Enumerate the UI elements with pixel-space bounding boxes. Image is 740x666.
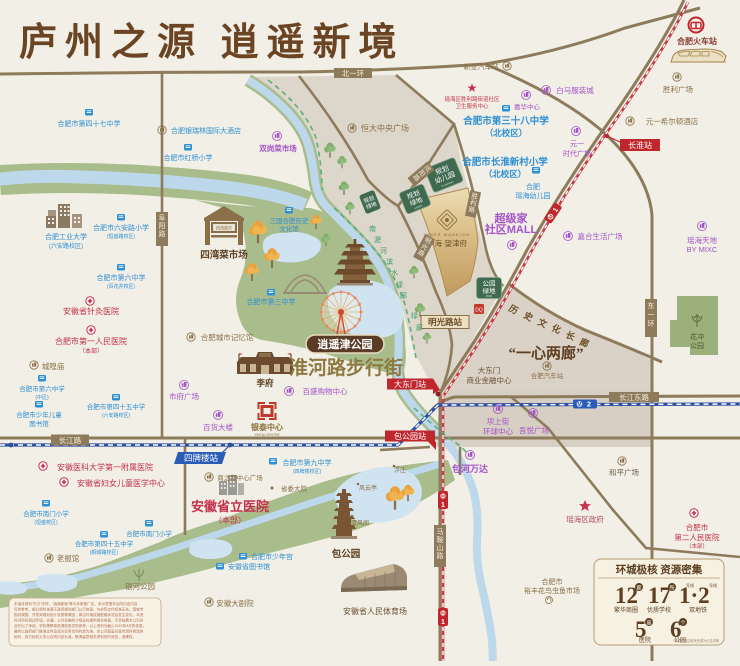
svg-text:时代广场: 时代广场 [563,149,591,158]
svg-text:裕丰花鸟虫鱼市场: 裕丰花鸟虫鱼市场 [524,586,580,595]
svg-text:大东门站: 大东门站 [394,379,426,389]
svg-text:廊: 廊 [400,291,407,300]
svg-text:合肥: 合肥 [526,182,540,191]
svg-text:文化馆: 文化馆 [279,224,299,233]
svg-text:（本部）: （本部） [214,515,246,525]
svg-text:四湾菜市: 四湾菜市 [216,225,232,231]
svg-text:最终以政府部门核准文件及双方买卖合同约定为准。本公司保留对宣: 最终以政府部门核准文件及双方买卖合同约定为准。本公司保留对宣传资料修改的 [14,629,144,634]
svg-text:合肥城市记忆馆: 合肥城市记忆馆 [201,332,254,342]
svg-text:第二人民医院: 第二人民医院 [675,532,720,542]
svg-text:1·2: 1·2 [679,583,710,608]
svg-text:李府: 李府 [255,378,274,388]
svg-text:合肥市六安路小学: 合肥市六安路小学 [93,223,149,232]
svg-text:包公园站: 包公园站 [394,431,426,441]
svg-text:淮河路步行街: 淮河路步行街 [289,356,403,379]
svg-text:环: 环 [648,320,655,328]
svg-text:商业金融中心: 商业金融中心 [467,375,512,385]
svg-text:三国合肥历史: 三国合肥历史 [270,216,310,225]
svg-text:滨: 滨 [386,257,393,266]
svg-text:嘉合生活广场: 嘉合生活广场 [578,231,623,241]
svg-text:M: M [441,494,445,499]
svg-text:明光路站: 明光路站 [428,317,463,327]
svg-text:鞍: 鞍 [437,535,444,544]
svg-text:规划调整、开发商规划设计变更等原因，周边环境设施配套状况会发: 规划调整、开发商规划设计变更等原因，周边环境设施配套状况会发生变化，本资 [14,612,144,617]
svg-text:合肥市第三十八中学: 合肥市第三十八中学 [463,115,549,127]
svg-text:（本部）: （本部） [79,347,103,355]
svg-text:个: 个 [680,621,685,627]
svg-text:(四牌楼校区): (四牌楼校区) [293,468,322,475]
svg-text:合肥市第六中学: 合肥市第六中学 [19,384,65,393]
svg-text:17: 17 [648,583,671,608]
svg-text:新亚汽车站: 新亚汽车站 [464,62,499,71]
svg-text:12: 12 [615,583,638,608]
svg-text:合肥市第四十七中学: 合肥市第四十七中学 [58,119,121,128]
svg-text:双地铁: 双地铁 [689,606,707,614]
svg-text:绿: 绿 [411,311,418,320]
svg-text:水: 水 [391,268,398,277]
svg-text:（本部）: （本部） [686,542,708,550]
svg-text:省委大院: 省委大院 [281,484,308,493]
svg-text:市府广场: 市府广场 [169,391,199,401]
svg-text:图书馆: 图书馆 [29,419,49,428]
svg-text:(恒盛路校区): (恒盛路校区) [107,233,136,240]
svg-text:合肥市第四十五中学: 合肥市第四十五中学 [87,402,146,411]
svg-text:公园: 公园 [483,280,496,288]
svg-text:YINTAI CENTRE: YINTAI CENTRE [254,433,280,437]
svg-text:双岗菜市场: 双岗菜市场 [259,143,297,153]
svg-text:银泰中心: 银泰中心 [250,422,283,432]
svg-text:阳: 阳 [159,221,166,230]
svg-text:恒大中央广场: 恒大中央广场 [361,123,409,133]
svg-text:路: 路 [437,551,444,560]
svg-text:合肥火车站: 合肥火车站 [676,36,717,46]
svg-text:（北校区）: （北校区） [485,128,528,138]
svg-text:合肥汽车站: 合肥汽车站 [531,371,564,380]
svg-text:绿: 绿 [396,280,403,289]
svg-text:绿地: 绿地 [483,286,497,295]
svg-text:安徽省立医院: 安徽省立医院 [191,499,269,514]
svg-text:马: 马 [437,528,444,536]
svg-text:合肥市第一人民医院: 合肥市第一人民医院 [55,336,127,346]
svg-text:南: 南 [369,224,376,233]
svg-text:庐州之源 逍遥新境: 庐州之源 逍遥新境 [19,22,405,64]
svg-text:合肥市少年儿童: 合肥市少年儿童 [16,410,62,419]
svg-text:长江东路: 长江东路 [619,392,649,402]
svg-text:合肥市第四十五中学: 合肥市第四十五中学 [75,539,134,548]
svg-text:坝上街: 坝上街 [487,416,510,426]
svg-text:合肥市少年宫: 合肥市少年宫 [251,552,293,561]
svg-text:阜: 阜 [159,213,166,222]
svg-text:吾悦广场: 吾悦广场 [519,425,549,435]
svg-text:北一环: 北一环 [342,69,365,78]
svg-text:料对项目周边环境、交通、公共设施的介绍旨在提供相关信息，不意: 料对项目周边环境、交通、公共设施的介绍旨在提供相关信息，不意味着本公司对 [14,618,144,623]
svg-text:M: M [441,611,445,616]
svg-text:2: 2 [587,400,591,409]
svg-text:路: 路 [159,229,166,238]
svg-text:安徽省图书馆: 安徽省图书馆 [228,562,270,571]
svg-text:（北校区）: （北校区） [484,169,527,179]
svg-text:此作出了承诺。学校等教育资源信息仅供参考，以上资料为截止20: 此作出了承诺。学校等教育资源信息仅供参考，以上资料为截止2022年8月的信息， [14,623,146,628]
svg-text:安徽大剧院: 安徽大剧院 [216,598,254,608]
svg-text:瑶海幼儿园: 瑶海幼儿园 [516,191,551,200]
svg-text:东: 东 [648,301,655,310]
svg-text:座: 座 [646,620,651,627]
svg-text:百盛购物中心: 百盛购物中心 [303,386,348,396]
svg-text:(百花井校区): (百花井校区) [107,283,136,290]
svg-text:环城极核 资源密集: 环城极核 资源密集 [616,563,703,576]
svg-text:河: 河 [380,247,387,255]
svg-text:安徽医科大学第一附属医院: 安徽医科大学第一附属医院 [57,462,153,472]
svg-text:花冲: 花冲 [690,332,704,341]
svg-text:合肥市第三中学: 合肥市第三中学 [247,297,296,306]
svg-text:四湾菜市场: 四湾菜市场 [200,249,248,261]
svg-text:长淮站: 长淮站 [628,140,652,150]
svg-text:(恒盛校区): (恒盛校区) [34,519,58,526]
svg-text:合肥市第六中学: 合肥市第六中学 [97,273,146,282]
svg-text:1: 1 [441,502,445,509]
svg-text:M: M [577,402,581,408]
svg-text:号线: 号线 [686,582,694,588]
svg-text:繁华商圈: 繁华商圈 [614,606,638,614]
svg-text:包河万达: 包河万达 [451,463,488,474]
svg-text:大东门: 大东门 [478,365,501,375]
svg-text:老报馆: 老报馆 [57,553,80,563]
svg-text:元一希尔顿酒店: 元一希尔顿酒店 [646,116,699,126]
svg-text:*以项目周边现状资源为示意说明: *以项目周边现状资源为示意说明 [673,638,719,643]
svg-text:(桐城路校区): (桐城路校区) [90,549,119,556]
svg-text:安徽省妇女儿童医学中心: 安徽省妇女儿童医学中心 [77,478,165,488]
svg-text:长江路: 长江路 [59,435,82,445]
svg-text:胜利广场: 胜利广场 [663,84,693,94]
svg-text:合肥市南门小学: 合肥市南门小学 [23,509,69,518]
svg-text:1: 1 [441,619,445,626]
svg-text:淝: 淝 [374,235,381,244]
svg-text:(中区): (中区) [35,394,49,401]
svg-text:优质学校: 优质学校 [647,606,671,614]
svg-text:元一: 元一 [570,140,584,148]
svg-text:山: 山 [437,543,444,552]
svg-text:四牌楼站: 四牌楼站 [184,453,219,463]
svg-text:医院: 医院 [639,636,651,644]
svg-text:白马服装城: 白马服装城 [556,85,594,95]
svg-text:合肥市长淮新村小学: 合肥市长淮新村小学 [462,156,548,168]
svg-text:安徽省针灸医院: 安徽省针灸医院 [63,306,119,316]
svg-text:廊: 廊 [636,585,641,592]
svg-text:瑶海区政府: 瑶海区政府 [566,514,604,524]
svg-text:公园: 公园 [690,342,704,350]
svg-text:环球中心: 环球中心 [483,426,513,436]
svg-text:一: 一 [648,312,655,319]
svg-text:卫生服务中心: 卫生服务中心 [455,102,489,110]
svg-text:合肥市: 合肥市 [542,577,563,586]
svg-text:合肥银瑞林国际大酒店: 合肥银瑞林国际大酒店 [171,126,241,135]
svg-text:瑶海天地: 瑶海天地 [687,235,717,245]
svg-text:社区MALL: 社区MALL [484,222,538,236]
svg-text:银河公园: 银河公园 [125,582,155,591]
svg-text:“一心两廊”: “一心两廊” [508,344,583,362]
svg-text:商之都中心广场: 商之都中心广场 [217,473,263,482]
svg-text:瑶海区胜利路街道社区: 瑶海区胜利路街道社区 [444,95,500,103]
svg-text:DQ: DQ [475,308,483,314]
svg-text:城隍庙: 城隍庙 [42,361,65,371]
svg-text:廊: 廊 [416,323,423,332]
svg-text:百货大楼: 百货大楼 [203,422,233,432]
svg-text:安徽省人民体育场: 安徽省人民体育场 [343,606,407,616]
svg-text:仅供参考，部分资料来源于政府规划部门公示信息，与实际交付标准: 仅供参考，部分资料来源于政府规划部门公示信息，与实际交付标准无关。因城市 [14,607,144,612]
svg-text:号线: 号线 [709,582,717,588]
svg-text:浮庄: 浮庄 [394,466,406,474]
svg-text:嘉华中心: 嘉华中心 [514,102,541,111]
svg-text:逍遥津公园: 逍遥津公园 [318,337,373,351]
svg-text:INNER MANSION: INNER MANSION [424,233,470,237]
svg-text:PARK: PARK [486,295,493,298]
svg-text:超级家: 超级家 [494,211,529,225]
svg-text:合肥市红桥小学: 合肥市红桥小学 [164,153,213,162]
svg-text:合肥市南门小学: 合肥市南门小学 [126,529,172,538]
svg-text:合肥市: 合肥市 [686,522,709,532]
svg-text:和平广场: 和平广场 [609,467,639,477]
svg-text:包公园: 包公园 [331,548,361,560]
svg-text:清风阁: 清风阁 [351,519,369,527]
svg-text:所: 所 [669,585,674,592]
svg-text:(六安路校区): (六安路校区) [49,242,83,250]
svg-text:BY MIXC: BY MIXC [687,245,718,254]
svg-text:(六安路校区): (六安路校区) [102,412,131,419]
svg-text:权利，双方权利义务以合同约定为准。敬请留意相关资料的时效性、: 权利，双方权利义务以合同约定为准。敬请留意相关资料的时效性、准确性。 [14,634,136,639]
svg-text:合肥市第九中学: 合肥市第九中学 [283,458,332,467]
svg-text:本宣传资料“东方”字样、“逍遥新境”等为本案推广名，本示意图: 本宣传资料“东方”字样、“逍遥新境”等为本案推广名，本示意图非合同约定内容 [14,601,138,606]
svg-text:合肥工业大学: 合肥工业大学 [45,232,87,241]
svg-text:风云亭: 风云亭 [359,484,377,492]
